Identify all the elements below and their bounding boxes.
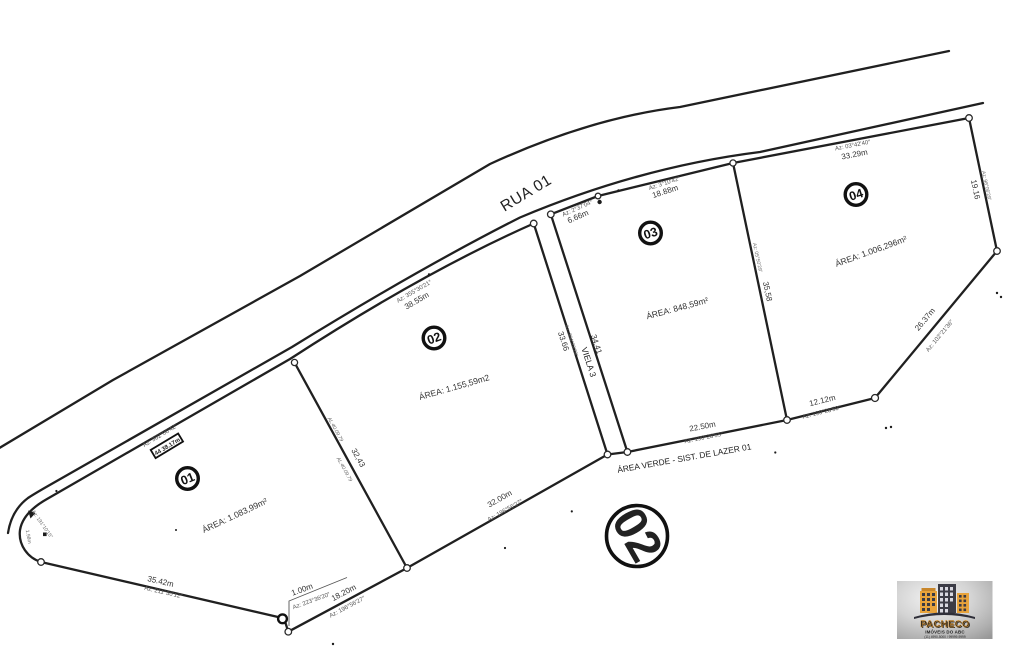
svg-text:PACHECO: PACHECO — [920, 619, 970, 630]
svg-text:IMÓVEIS DO ABC: IMÓVEIS DO ABC — [925, 630, 965, 635]
svg-text:(11) 4990-5000 / 99999-9999: (11) 4990-5000 / 99999-9999 — [924, 635, 965, 639]
